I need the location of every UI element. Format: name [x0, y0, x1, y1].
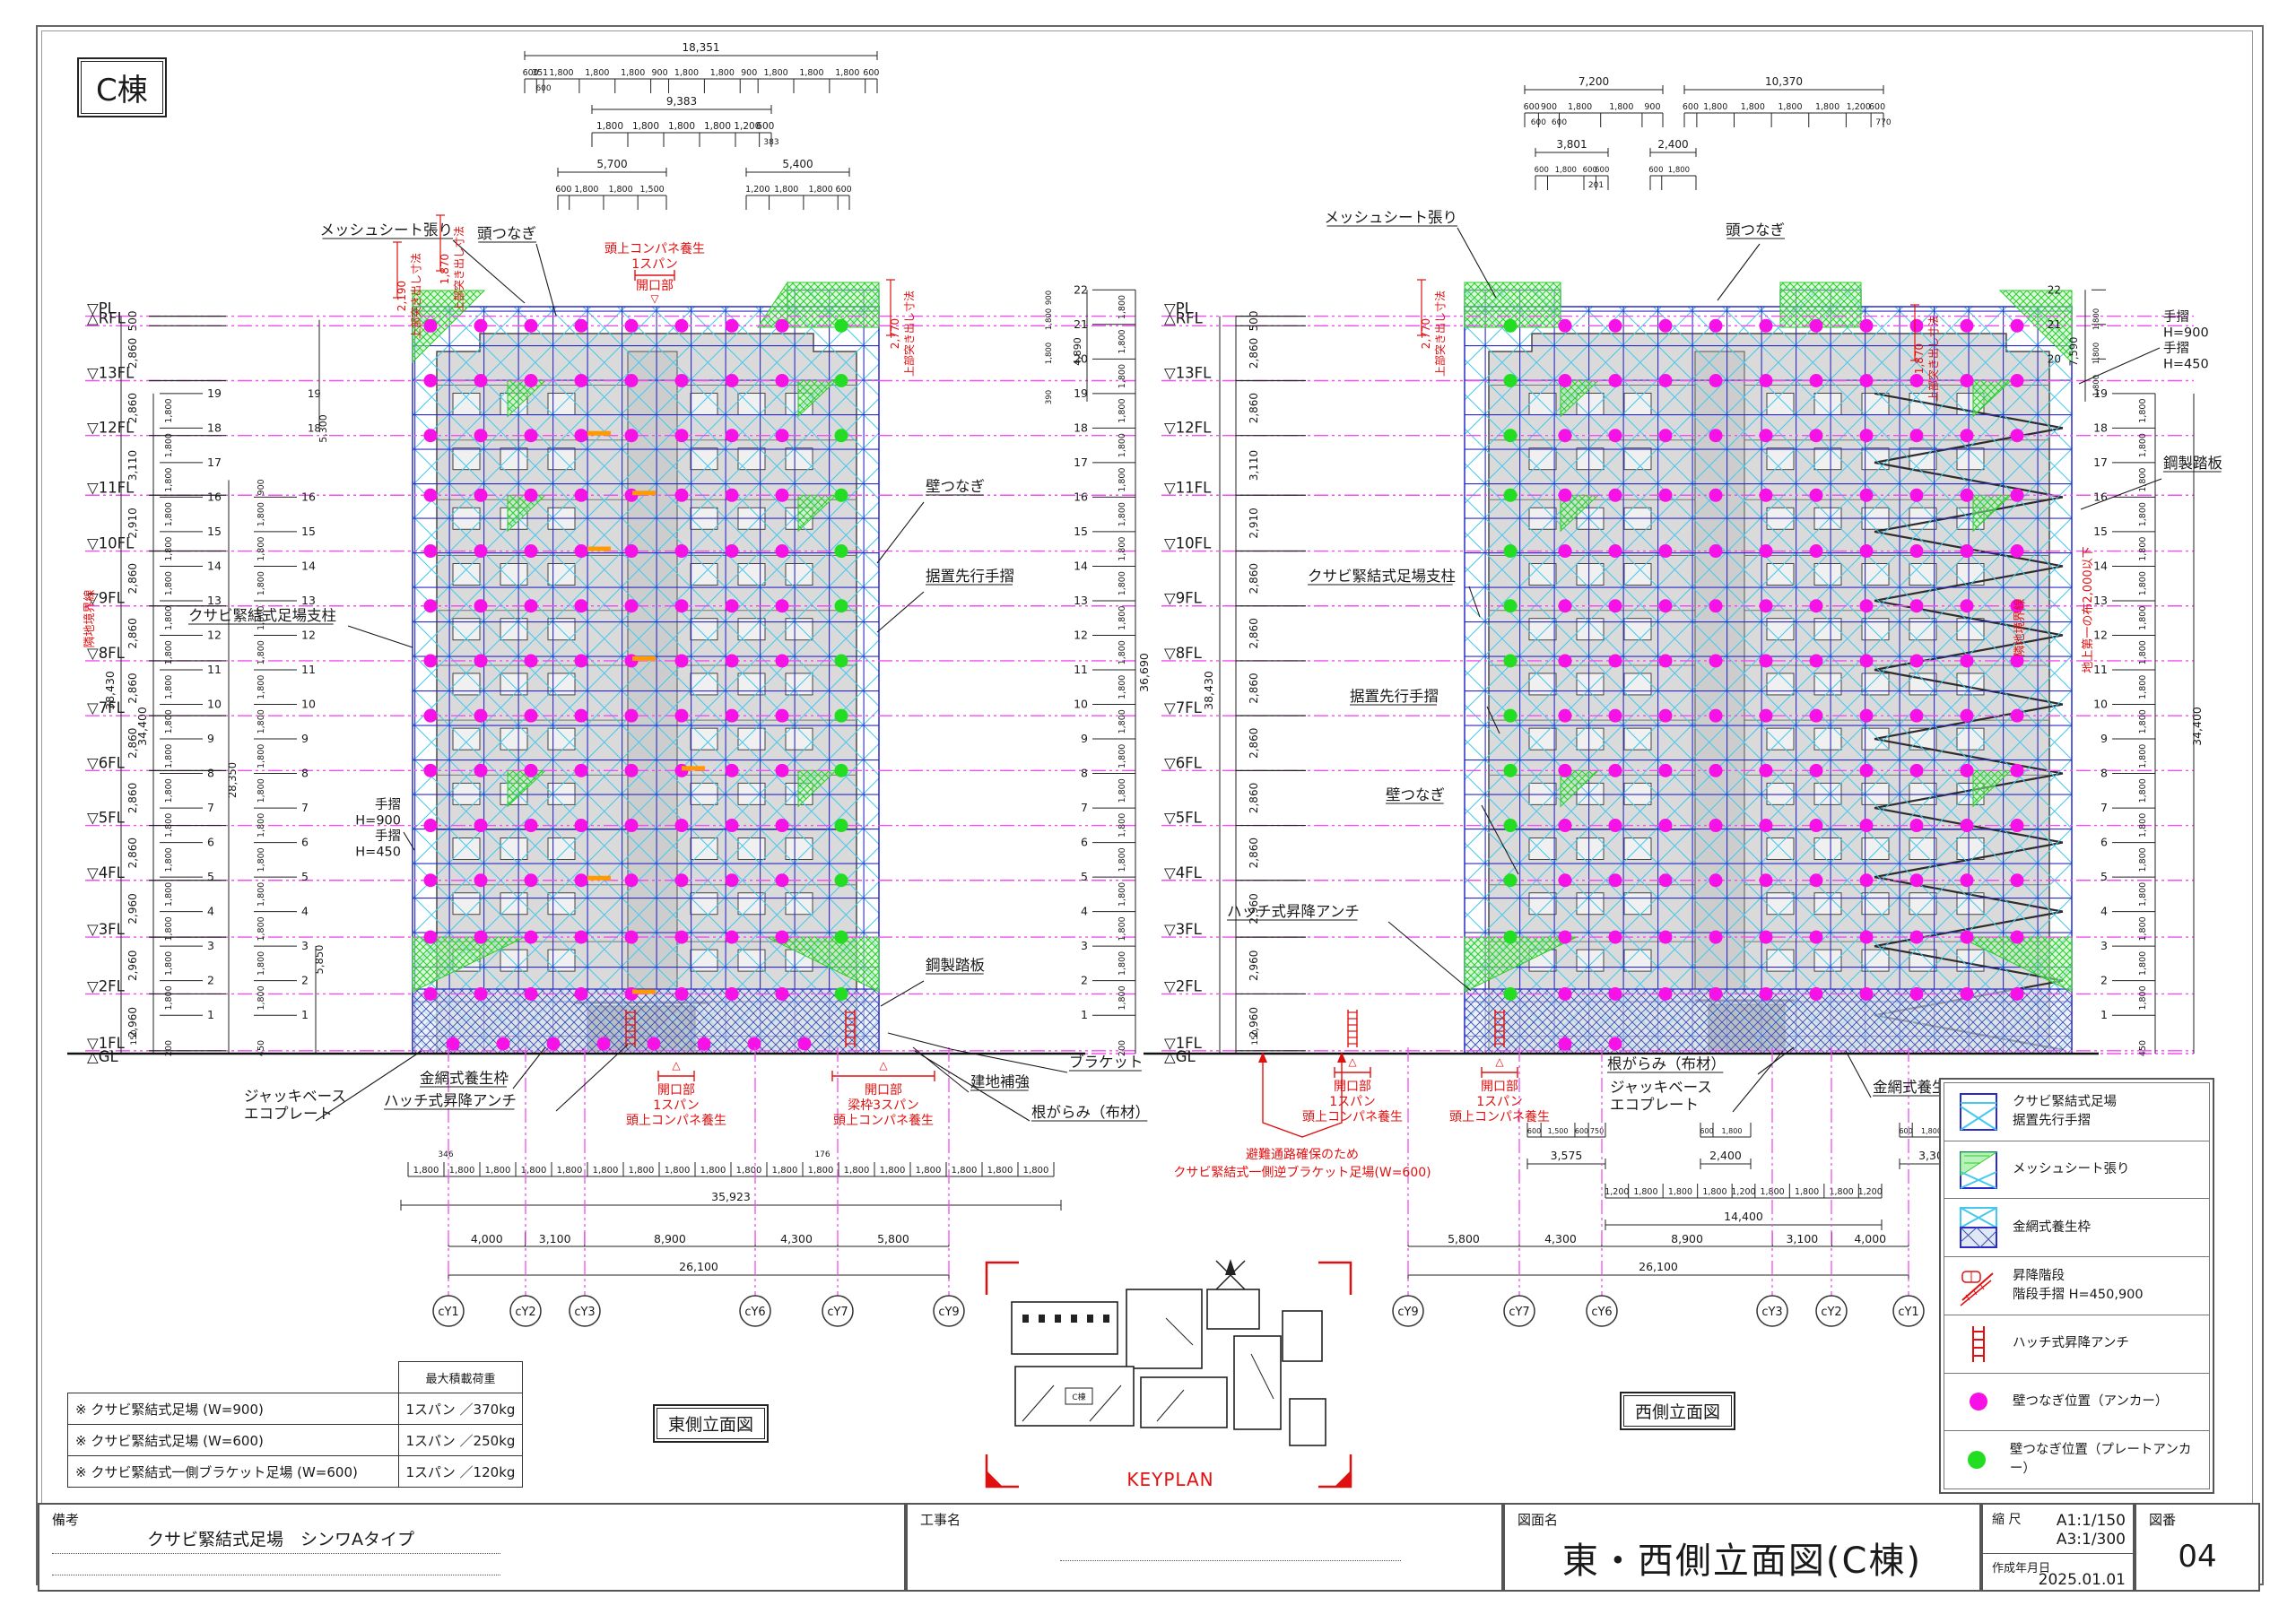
load-table-row-0: ※ クサビ緊結式足場 (W=900)1スパン ／370kg [68, 1393, 523, 1425]
load-table-value: 1スパン ／370kg [398, 1393, 523, 1425]
east-view-title: 東側立面図 [653, 1404, 769, 1443]
building-tag: C棟 [77, 57, 167, 117]
legend-item-3: 昇降階段階段手摺 H=450,900 [1944, 1256, 2209, 1315]
legend-item-label: 壁つなぎ位置（プレートアンカー） [2010, 1441, 2209, 1479]
mesh-icon [1944, 1149, 2013, 1192]
legend-item-label: 金網式養生枠 [2013, 1219, 2091, 1237]
scale-values: A1:1/150A3:1/300 [2057, 1512, 2126, 1550]
wire-icon [1944, 1206, 2013, 1249]
west-view-title: 西側立面図 [1620, 1392, 1735, 1430]
legend-item-label: 壁つなぎ位置（アンカー） [2013, 1393, 2168, 1411]
keyplan-label: KEYPLAN [1112, 1469, 1229, 1490]
titleblock-scale-date-cell: 縮 尺 A1:1/150A3:1/300 作成年月日 2025.01.01 [1981, 1503, 2135, 1592]
legend-item-5: 壁つなぎ位置（アンカー） [1944, 1373, 2209, 1431]
remarks-text: クサビ緊結式足場 シンワAタイプ [147, 1526, 414, 1550]
load-table-header: 最大積載荷重 [398, 1362, 523, 1393]
drawing-name: 東・西側立面図(C棟) [1505, 1532, 1979, 1584]
load-table-row-2: ※ クサビ緊結式一側ブラケット足場 (W=600)1スパン ／120kg [68, 1456, 523, 1488]
titleblock-drawing-name-cell: 図面名 東・西側立面図(C棟) [1503, 1503, 1981, 1592]
load-capacity-table: 最大積載荷重※ クサビ緊結式足場 (W=900)1スパン ／370kg※ クサビ… [67, 1361, 523, 1488]
legend-item-2: 金網式養生枠 [1944, 1198, 2209, 1256]
titleblock-remarks-cell: 備考 クサビ緊結式足場 シンワAタイプ [38, 1503, 906, 1592]
load-table-row-1: ※ クサビ緊結式足場 (W=600)1スパン ／250kg [68, 1425, 523, 1456]
titleblock-project-cell: 工事名 [906, 1503, 1503, 1592]
stair-icon [1944, 1264, 2013, 1307]
ladder-icon [1944, 1323, 2013, 1366]
legend-item-label: ハッチ式昇降アンチ [2013, 1334, 2129, 1353]
load-table-value: 1スパン ／120kg [398, 1456, 523, 1488]
dot_anchor-icon [1944, 1380, 2013, 1423]
date-value: 2025.01.01 [2039, 1571, 2126, 1589]
legend: クサビ緊結式足場据置先行手摺メッシュシート張り金網式養生枠昇降階段階段手摺 H=… [1939, 1078, 2214, 1494]
drawing-sheet: ▽PL500△RFL2,860▽13FL2,860▽12FL3,110▽11FL… [0, 0, 2296, 1623]
load-table-value: 1スパン ／250kg [398, 1425, 523, 1456]
titleblock-number-cell: 図番 04 [2135, 1503, 2260, 1592]
legend-item-6: 壁つなぎ位置（プレートアンカー） [1944, 1430, 2209, 1488]
sheet-frame-inner [41, 30, 2253, 1575]
drawing-number-label: 図番 [2149, 1510, 2176, 1529]
drawing-number: 04 [2136, 1539, 2258, 1575]
legend-item-0: クサビ緊結式足場据置先行手摺 [1944, 1083, 2209, 1141]
scale-label: 縮 尺 [1992, 1510, 2021, 1528]
load-table-name: ※ クサビ緊結式一側ブラケット足場 (W=600) [68, 1456, 399, 1488]
scaffold-icon [1944, 1090, 2013, 1133]
legend-item-label: 昇降階段階段手摺 H=450,900 [2013, 1267, 2144, 1305]
load-table-name: ※ クサビ緊結式足場 (W=600) [68, 1425, 399, 1456]
dot_plate-icon [1944, 1438, 2010, 1481]
legend-item-label: メッシュシート張り [2013, 1160, 2130, 1179]
load-table-name: ※ クサビ緊結式足場 (W=900) [68, 1393, 399, 1425]
project-label: 工事名 [920, 1510, 961, 1529]
legend-item-label: クサビ緊結式足場据置先行手摺 [2013, 1093, 2117, 1131]
drawing-name-label: 図面名 [1518, 1510, 1558, 1529]
legend-item-1: メッシュシート張り [1944, 1141, 2209, 1199]
legend-item-4: ハッチ式昇降アンチ [1944, 1315, 2209, 1373]
building-tag-label: C棟 [81, 61, 163, 114]
remarks-label: 備考 [52, 1510, 79, 1529]
